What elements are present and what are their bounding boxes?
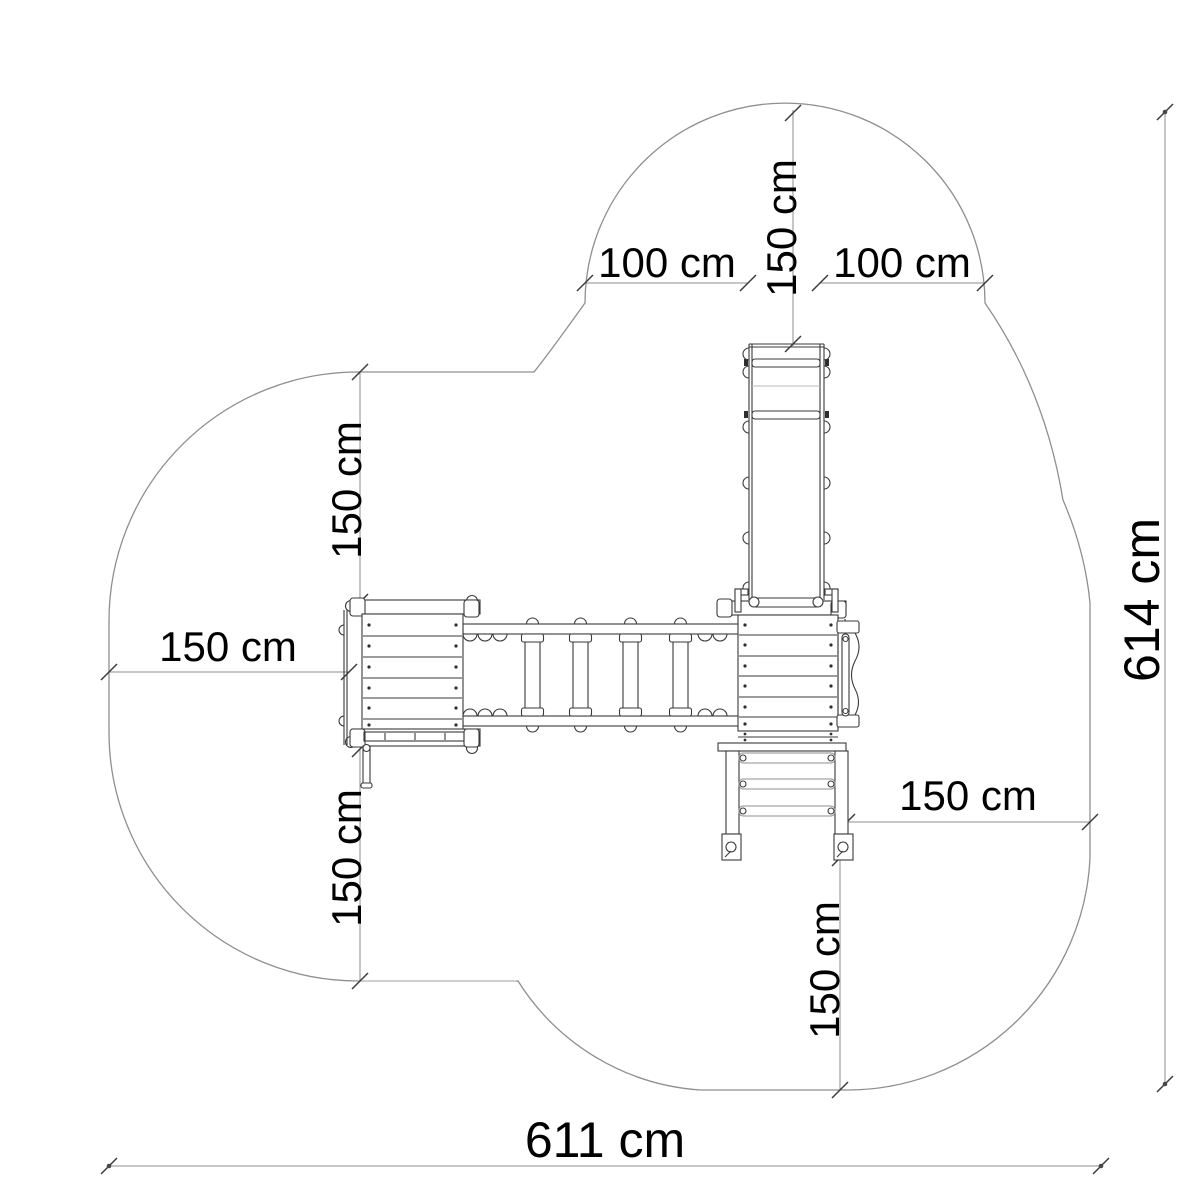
drawing-canvas: 100 cm 100 cm 150 cm 150 cm 150 cm 150 c… (0, 0, 1200, 1200)
grab-bar (842, 634, 849, 716)
dim-label-bottom-right: 150 cm (801, 901, 848, 1039)
rail-clamps-left (743, 348, 749, 594)
bridge-rung (522, 618, 544, 732)
deck (362, 614, 463, 732)
dim-label-overall-width: 611 cm (525, 1112, 685, 1168)
right-platform (717, 599, 859, 751)
support-pole (361, 745, 372, 789)
dim-label-right-middle: 150 cm (899, 772, 1037, 819)
ladder-rung (739, 753, 835, 763)
platform-frame-lower-band (718, 743, 846, 751)
footer-boards (738, 737, 838, 743)
corner-post (717, 599, 732, 617)
ladder-rail-right (835, 751, 848, 834)
bridge-walkway (463, 618, 739, 732)
dim-label-top-center: 150 cm (758, 159, 805, 297)
platform-frame-top (352, 600, 480, 614)
dimension-labels: 100 cm 100 cm 150 cm 150 cm 150 cm 150 c… (159, 159, 1170, 1168)
hinge-clamp (339, 625, 344, 726)
climbing-attachment (837, 621, 859, 727)
technical-drawing: 100 cm 100 cm 150 cm 150 cm 150 cm 150 c… (0, 0, 1200, 1200)
bridge-bottom-rail (463, 716, 739, 726)
access-ladder (722, 751, 853, 860)
corner-post (350, 729, 365, 747)
corner-post (350, 598, 365, 616)
dim-label-top-right: 100 cm (833, 239, 971, 286)
corner-post (464, 729, 479, 747)
tower-rung (752, 411, 820, 419)
dim-label-top-left: 100 cm (598, 239, 736, 286)
bridge-top-rail (463, 624, 739, 634)
rail-clamps-right (824, 348, 830, 594)
tower-rung (752, 359, 820, 367)
deck (738, 615, 838, 731)
tower-chute (735, 344, 838, 612)
ground-anchor (834, 834, 853, 860)
bridge-rung (570, 618, 592, 732)
wavy-edge (852, 633, 860, 715)
dim-label-overall-height: 614 cm (1114, 518, 1170, 682)
dim-label-left-upper: 150 cm (323, 421, 370, 559)
bridge-rung (670, 618, 692, 732)
ladder-rung (739, 779, 835, 789)
dim-label-left-middle: 150 cm (159, 623, 297, 670)
bridge-rung (620, 618, 642, 732)
dim-label-left-lower: 150 cm (323, 789, 370, 927)
ladder-rung (739, 806, 835, 816)
ladder-rail-left (726, 751, 739, 834)
corner-post (464, 600, 479, 617)
ground-anchor (722, 834, 741, 860)
